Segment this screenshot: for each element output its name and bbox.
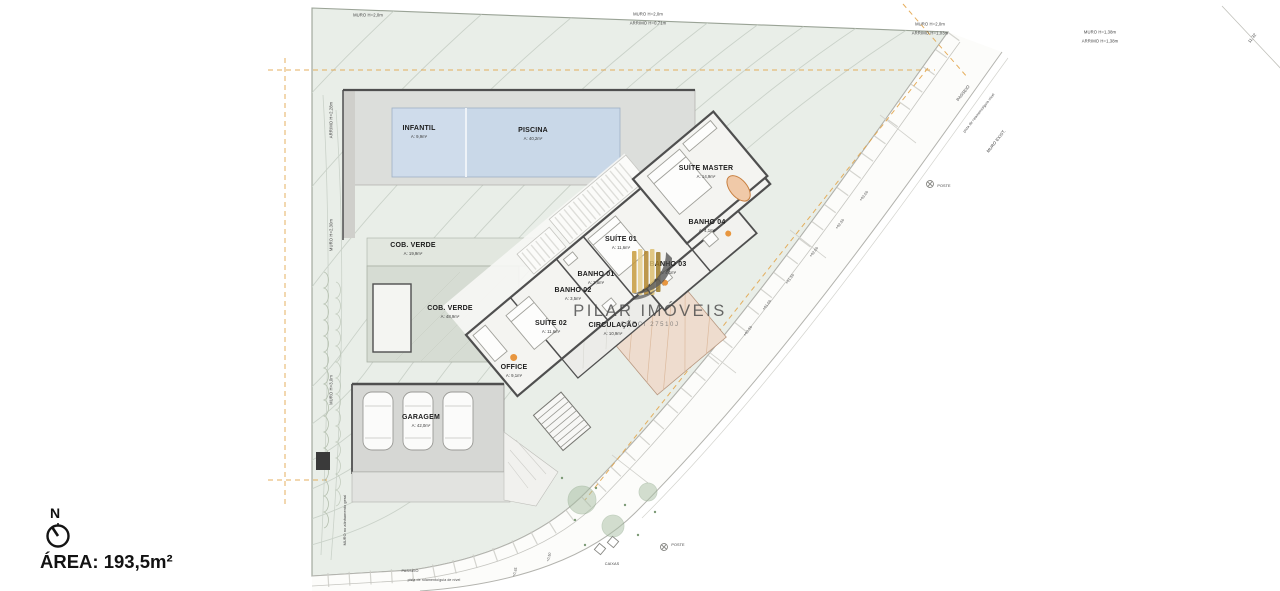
gate-post — [316, 452, 330, 470]
north-compass: N — [44, 505, 74, 556]
pole-icon — [659, 542, 669, 552]
pole-icon — [925, 179, 935, 189]
site-plan-page: INFANTILA: 9,9m²PISCINAA: 40,2m²SUÍTE MA… — [0, 0, 1280, 591]
skylight — [373, 284, 411, 352]
kids-pool — [392, 108, 466, 177]
main-pool — [466, 108, 620, 177]
utility-box — [607, 536, 618, 547]
utility-box — [594, 543, 605, 554]
watermark: PILAR IMÓVEIS CRECI 27510J — [560, 248, 740, 328]
parked-cars — [363, 392, 473, 450]
watermark-creci: CRECI 27510J — [560, 322, 740, 328]
lot-area-text: ÁREA: 193,5m² — [40, 551, 173, 573]
compass-icon — [44, 521, 74, 551]
north-label: N — [50, 505, 74, 521]
pilar-logo-icon — [626, 248, 674, 300]
watermark-name: PILAR IMÓVEIS — [560, 302, 740, 321]
